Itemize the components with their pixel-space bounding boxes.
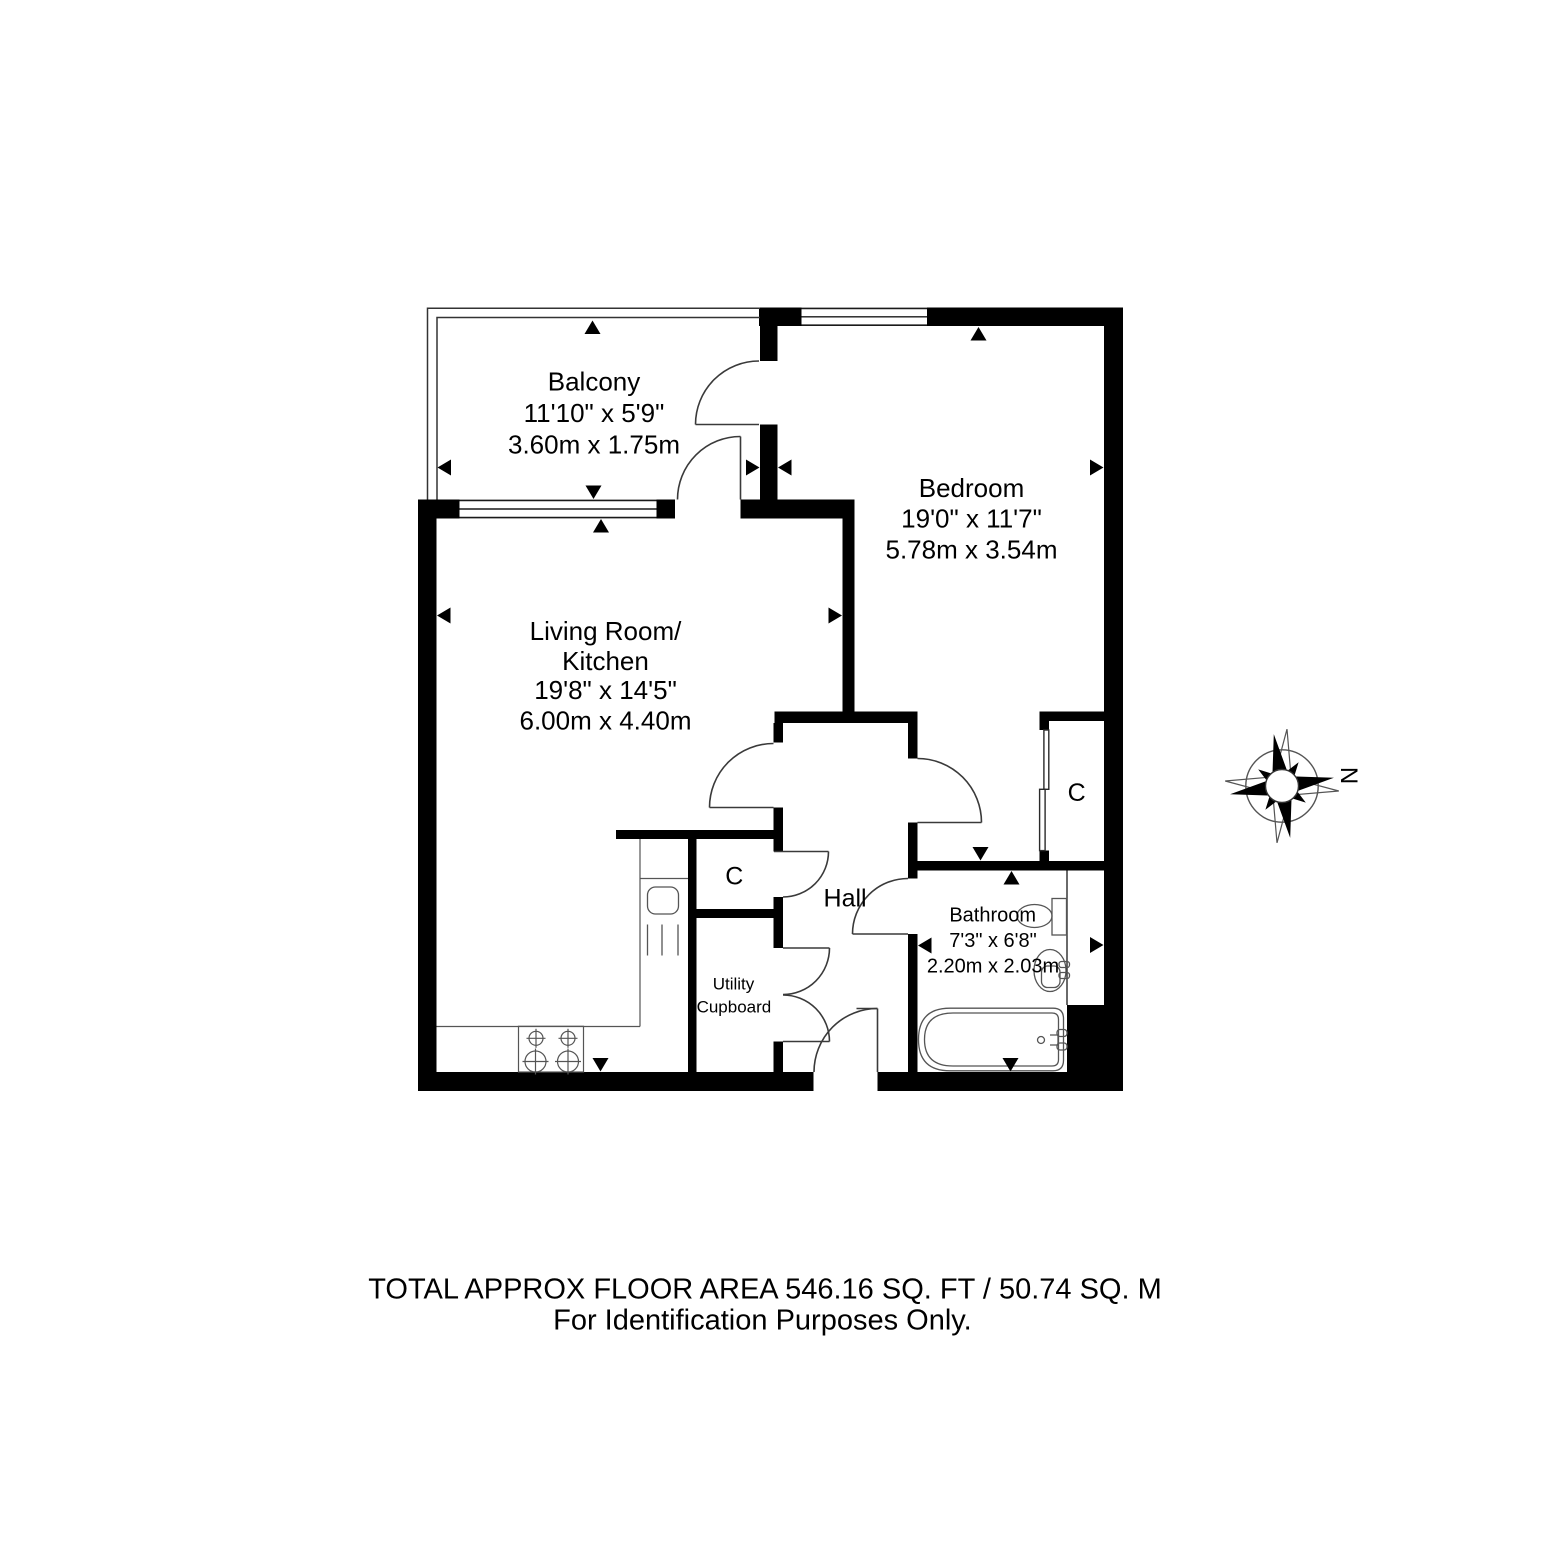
svg-text:Bathroom: Bathroom (949, 905, 1036, 927)
svg-text:Balcony: Balcony (548, 367, 641, 397)
svg-text:2.20m x 2.03m: 2.20m x 2.03m (927, 955, 1059, 977)
svg-text:TOTAL APPROX FLOOR AREA 546.16: TOTAL APPROX FLOOR AREA 546.16 SQ. FT / … (368, 1274, 1162, 1306)
svg-text:11'10" x 5'9": 11'10" x 5'9" (524, 398, 665, 428)
svg-text:Cupboard: Cupboard (697, 998, 772, 1017)
svg-text:6.00m x 4.40m: 6.00m x 4.40m (520, 705, 692, 735)
svg-text:3.60m x 1.75m: 3.60m x 1.75m (508, 430, 680, 460)
svg-text:N: N (1335, 767, 1362, 784)
svg-text:Living Room/: Living Room/ (530, 616, 683, 646)
svg-text:Hall: Hall (824, 884, 867, 912)
svg-text:7'3" x 6'8": 7'3" x 6'8" (949, 930, 1036, 952)
svg-text:C: C (1068, 779, 1086, 807)
svg-text:For Identification Purposes On: For Identification Purposes Only. (553, 1304, 972, 1336)
svg-text:19'8" x 14'5": 19'8" x 14'5" (534, 675, 677, 705)
svg-text:Kitchen: Kitchen (562, 646, 649, 676)
svg-text:Utility: Utility (713, 975, 755, 994)
svg-text:5.78m x 3.54m: 5.78m x 3.54m (886, 535, 1058, 565)
svg-text:C: C (725, 863, 743, 891)
svg-text:19'0" x 11'7": 19'0" x 11'7" (901, 504, 1042, 534)
svg-text:Bedroom: Bedroom (919, 473, 1025, 503)
